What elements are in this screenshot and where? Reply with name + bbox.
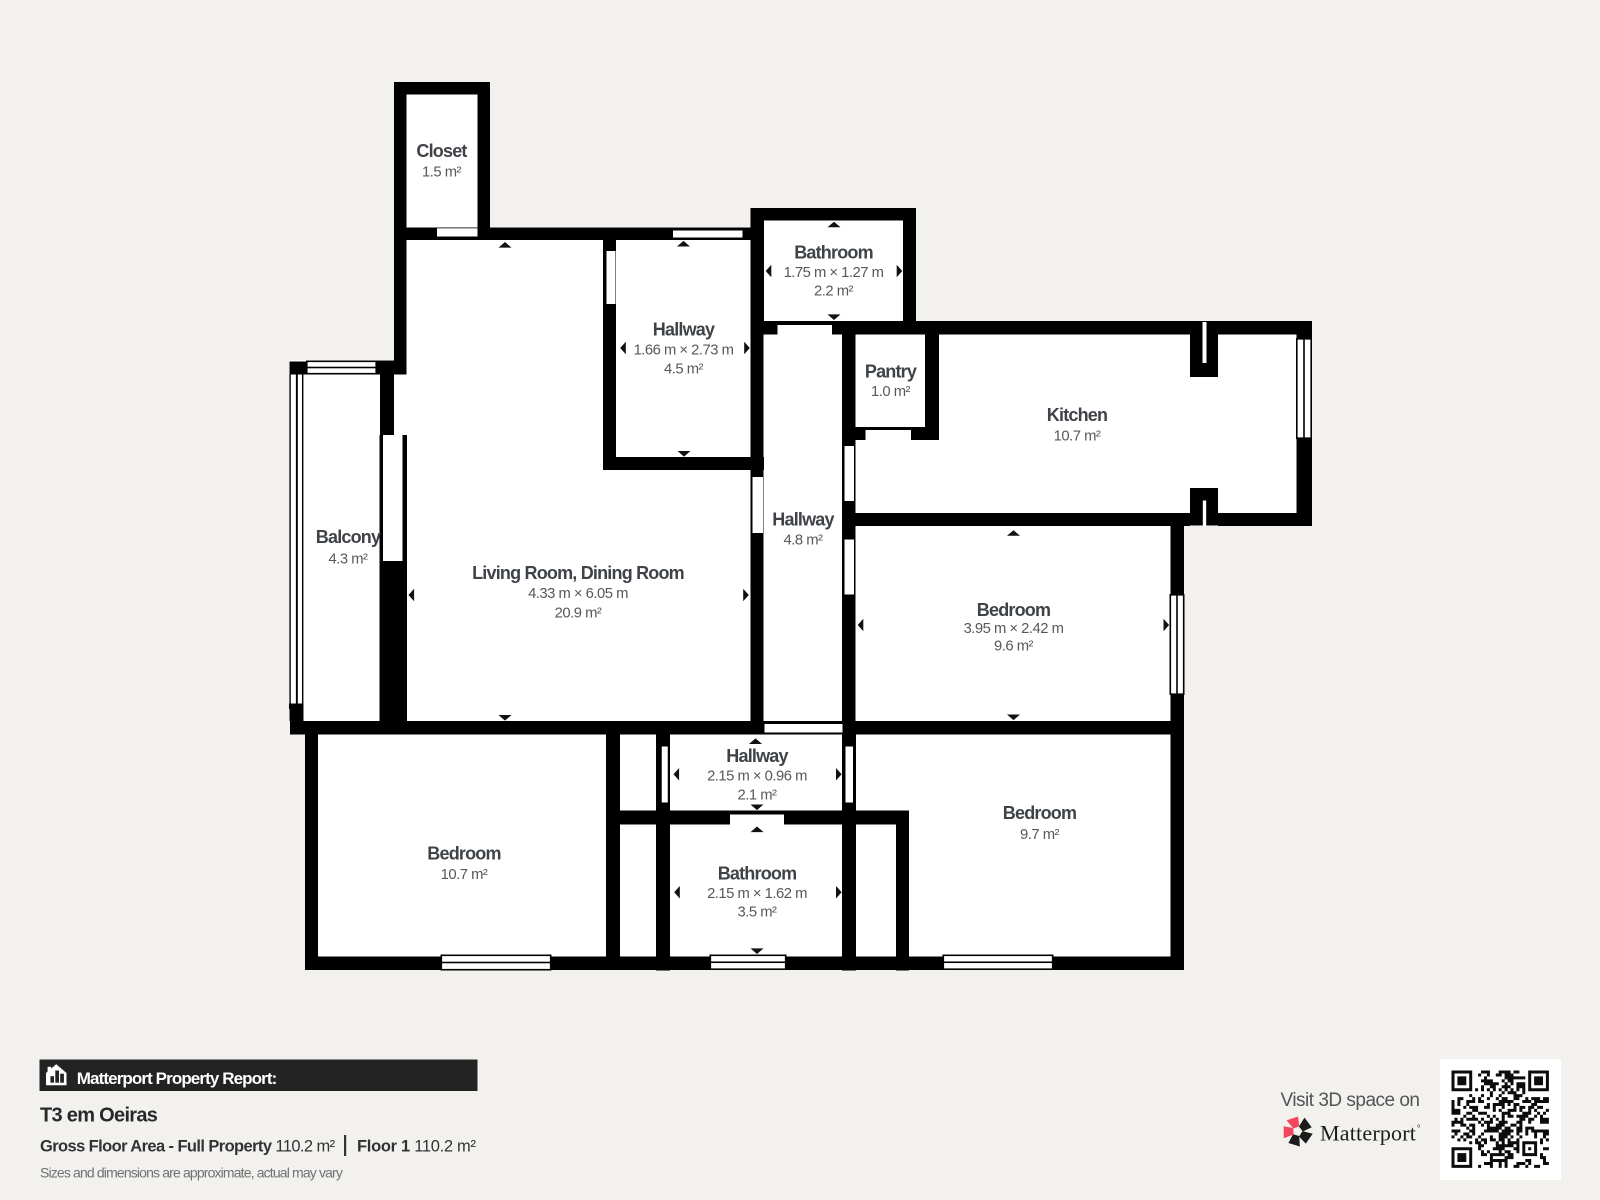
svg-text:Hallway: Hallway	[653, 320, 715, 340]
svg-text:9.7 m²: 9.7 m²	[1020, 827, 1060, 843]
svg-text:Bathroom: Bathroom	[794, 243, 873, 263]
svg-text:4.8 m²: 4.8 m²	[784, 533, 824, 549]
svg-text:2.15 m × 0.96 m: 2.15 m × 0.96 m	[707, 769, 807, 785]
svg-text:10.7 m²: 10.7 m²	[441, 867, 488, 883]
svg-text:1.0 m²: 1.0 m²	[871, 384, 911, 400]
svg-text:Pantry: Pantry	[865, 362, 917, 382]
svg-text:Matterport: Matterport	[1320, 1121, 1416, 1146]
svg-text:Bedroom: Bedroom	[1003, 803, 1076, 823]
svg-text:20.9 m²: 20.9 m²	[555, 606, 602, 622]
svg-text:T3 em Oeiras: T3 em Oeiras	[40, 1105, 158, 1127]
svg-text:Bedroom: Bedroom	[427, 844, 500, 864]
svg-text:Gross Floor Area - Full Proper: Gross Floor Area - Full Property 110.2 m…	[40, 1138, 336, 1156]
svg-text:Bedroom: Bedroom	[977, 600, 1050, 620]
svg-text:2.2 m²: 2.2 m²	[814, 284, 854, 300]
svg-text:Balcony: Balcony	[316, 527, 381, 547]
svg-text:3.95 m × 2.42 m: 3.95 m × 2.42 m	[964, 621, 1064, 637]
svg-text:Sizes and dimensions are appro: Sizes and dimensions are approximate, ac…	[40, 1165, 343, 1181]
svg-text:4.3 m²: 4.3 m²	[329, 552, 369, 568]
svg-text:1.66 m × 2.73 m: 1.66 m × 2.73 m	[634, 343, 734, 359]
svg-text:°: °	[1417, 1123, 1421, 1133]
svg-text:2.15 m × 1.62 m: 2.15 m × 1.62 m	[707, 886, 807, 902]
svg-text:Kitchen: Kitchen	[1047, 405, 1107, 425]
svg-text:Matterport Property Report:: Matterport Property Report:	[77, 1069, 277, 1088]
svg-text:3.5 m²: 3.5 m²	[738, 905, 778, 921]
svg-text:Visit 3D space on: Visit 3D space on	[1280, 1090, 1419, 1111]
svg-text:4.5 m²: 4.5 m²	[664, 362, 704, 378]
svg-text:2.1 m²: 2.1 m²	[738, 788, 778, 804]
svg-text:4.33 m × 6.05 m: 4.33 m × 6.05 m	[528, 586, 628, 602]
svg-text:1.5 m²: 1.5 m²	[422, 165, 462, 181]
svg-text:Closet: Closet	[416, 141, 467, 161]
svg-text:10.7 m²: 10.7 m²	[1054, 429, 1101, 445]
svg-text:Living Room, Dining Room: Living Room, Dining Room	[472, 563, 684, 583]
svg-text:Hallway: Hallway	[726, 746, 788, 766]
svg-text:Floor 1 110.2 m²: Floor 1 110.2 m²	[357, 1138, 476, 1156]
svg-text:Hallway: Hallway	[772, 510, 834, 530]
svg-text:Bathroom: Bathroom	[718, 864, 797, 884]
svg-text:9.6 m²: 9.6 m²	[994, 639, 1034, 655]
svg-text:1.75 m × 1.27 m: 1.75 m × 1.27 m	[784, 265, 884, 281]
